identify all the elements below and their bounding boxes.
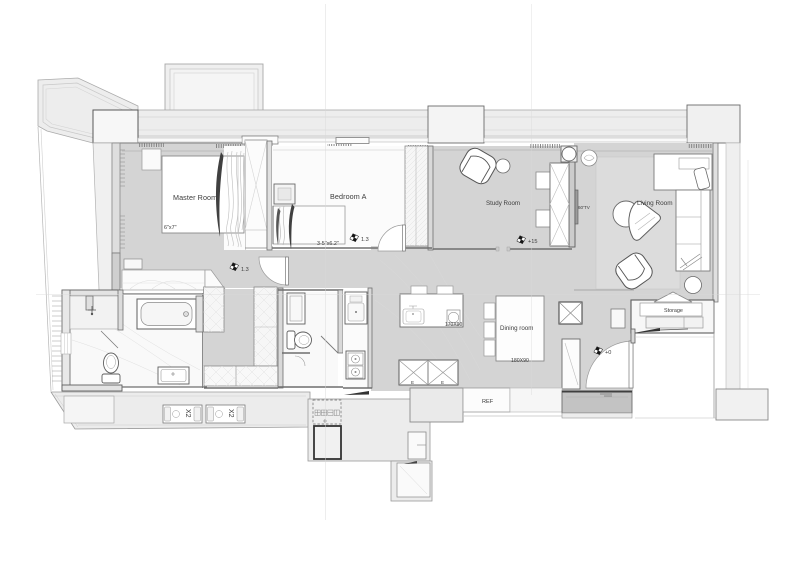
- svg-text:6"x7": 6"x7": [164, 225, 177, 231]
- svg-text:3-5"x6.2": 3-5"x6.2": [317, 241, 339, 247]
- svg-text:Dining room: Dining room: [500, 325, 533, 332]
- svg-text:REF: REF: [482, 399, 494, 405]
- svg-text:X2: X2: [227, 409, 234, 418]
- svg-text:+0: +0: [605, 350, 611, 356]
- svg-text:E: E: [411, 380, 414, 385]
- svg-text:Living Room: Living Room: [637, 200, 673, 207]
- svg-text:1.3: 1.3: [241, 267, 249, 273]
- svg-text:170X90: 170X90: [445, 322, 462, 328]
- svg-text:+15: +15: [528, 239, 538, 245]
- svg-text:60'TV: 60'TV: [578, 205, 591, 210]
- svg-text:Study Room: Study Room: [486, 200, 520, 207]
- svg-text:1.3: 1.3: [361, 237, 369, 243]
- svg-text:Master Room: Master Room: [173, 193, 217, 202]
- svg-text:Storage: Storage: [664, 308, 683, 314]
- svg-text:E: E: [441, 380, 444, 385]
- svg-text:Bedroom A: Bedroom A: [330, 192, 367, 201]
- svg-text:X2: X2: [184, 409, 191, 418]
- svg-text:180X90: 180X90: [511, 358, 529, 364]
